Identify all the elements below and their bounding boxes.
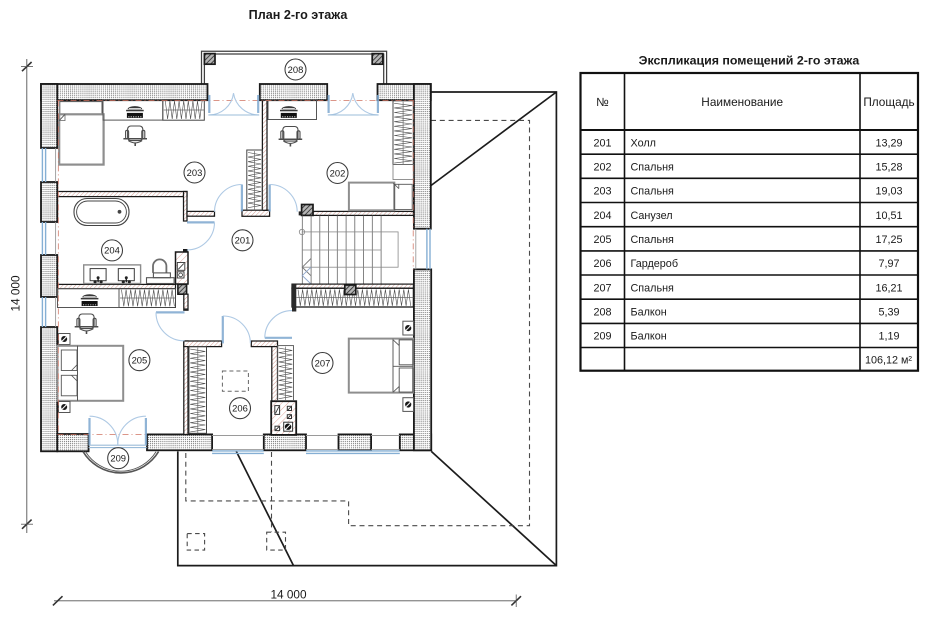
svg-text:106,12 м²: 106,12 м² [865, 355, 912, 367]
svg-text:19,03: 19,03 [875, 186, 902, 198]
svg-text:201: 201 [593, 137, 611, 149]
svg-text:План 2-го этажа: План 2-го этажа [249, 8, 349, 22]
svg-text:1,19: 1,19 [878, 331, 899, 343]
svg-text:203: 203 [593, 186, 611, 198]
svg-text:7,97: 7,97 [878, 258, 899, 270]
svg-text:209: 209 [110, 453, 126, 464]
svg-text:Спальня: Спальня [631, 162, 675, 174]
svg-text:Спальня: Спальня [631, 234, 675, 246]
svg-text:14 000: 14 000 [9, 275, 23, 312]
svg-text:206: 206 [593, 258, 611, 270]
svg-text:209: 209 [593, 331, 611, 343]
svg-text:207: 207 [315, 357, 331, 368]
svg-text:Холл: Холл [631, 137, 656, 149]
svg-text:Экспликация помещений 2-го эта: Экспликация помещений 2-го этажа [639, 54, 860, 68]
svg-text:16,21: 16,21 [875, 282, 902, 294]
svg-text:Балкон: Балкон [631, 331, 667, 343]
svg-text:205: 205 [132, 355, 148, 366]
svg-text:Спальня: Спальня [631, 282, 675, 294]
svg-text:201: 201 [235, 235, 251, 246]
svg-text:Площадь: Площадь [863, 95, 914, 109]
svg-text:15,28: 15,28 [875, 162, 902, 174]
svg-text:13,29: 13,29 [875, 137, 902, 149]
svg-text:Гардероб: Гардероб [631, 258, 679, 270]
svg-text:Санузел: Санузел [631, 210, 673, 222]
svg-text:Наименование: Наименование [701, 95, 783, 109]
svg-text:206: 206 [232, 403, 248, 414]
svg-text:№: № [596, 95, 609, 109]
svg-text:208: 208 [288, 64, 304, 75]
svg-text:208: 208 [593, 307, 611, 319]
svg-text:202: 202 [330, 167, 346, 178]
svg-text:205: 205 [593, 234, 611, 246]
svg-text:202: 202 [593, 162, 611, 174]
svg-text:207: 207 [593, 282, 611, 294]
svg-text:Спальня: Спальня [631, 186, 675, 198]
svg-text:17,25: 17,25 [875, 234, 902, 246]
svg-text:14 000: 14 000 [270, 588, 307, 602]
svg-text:204: 204 [593, 210, 611, 222]
svg-text:Балкон: Балкон [631, 307, 667, 319]
svg-text:204: 204 [104, 245, 120, 256]
svg-text:10,51: 10,51 [875, 210, 902, 222]
svg-text:203: 203 [187, 167, 203, 178]
svg-text:5,39: 5,39 [878, 307, 899, 319]
